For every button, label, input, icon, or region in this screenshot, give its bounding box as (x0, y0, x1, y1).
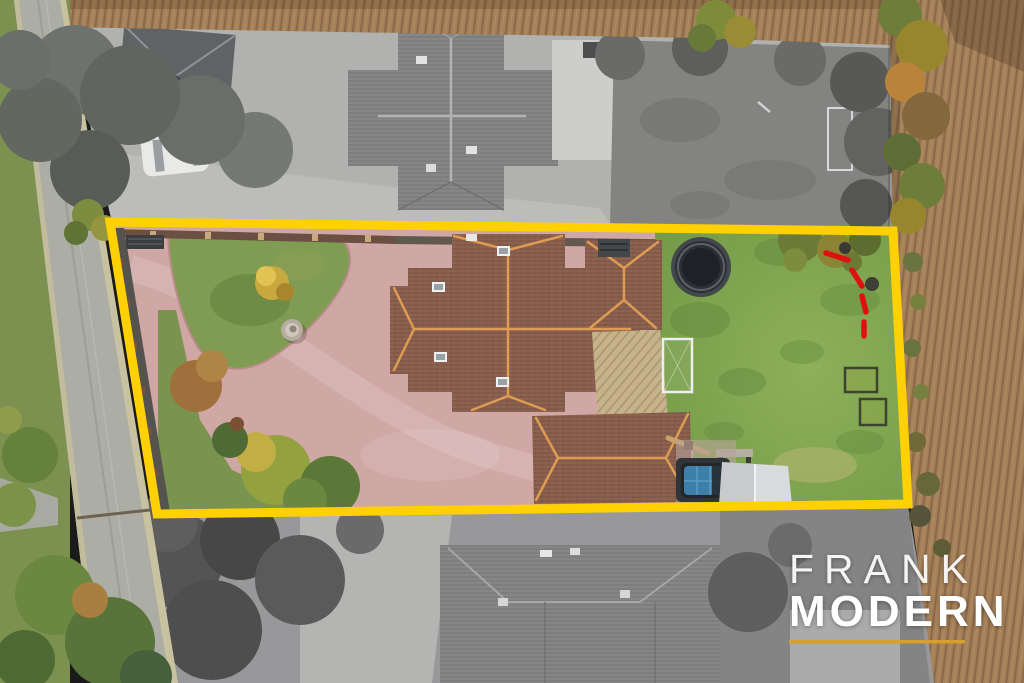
dark-bin (839, 242, 851, 254)
frank-modern-logo: FRANK MODERN (789, 549, 1009, 644)
aerial-photo-stage: FRANK MODERN (0, 0, 1024, 683)
decking (592, 330, 668, 422)
garden-frame-1 (845, 368, 877, 392)
property-interior (100, 215, 920, 522)
neighbour-house-south-roof (440, 545, 720, 683)
logo-line-2: MODERN (789, 590, 1009, 634)
dark-bin-2 (865, 277, 879, 291)
football-goal (663, 339, 692, 392)
panel-store (598, 239, 630, 257)
logo-line-1: FRANK (789, 549, 1009, 590)
garden-frame-2 (860, 399, 886, 425)
rear-annex-roof (532, 412, 692, 504)
entrance-grate (126, 235, 164, 249)
logo-underline (789, 640, 965, 644)
trampoline (671, 237, 731, 297)
barrel-planter (230, 417, 244, 431)
